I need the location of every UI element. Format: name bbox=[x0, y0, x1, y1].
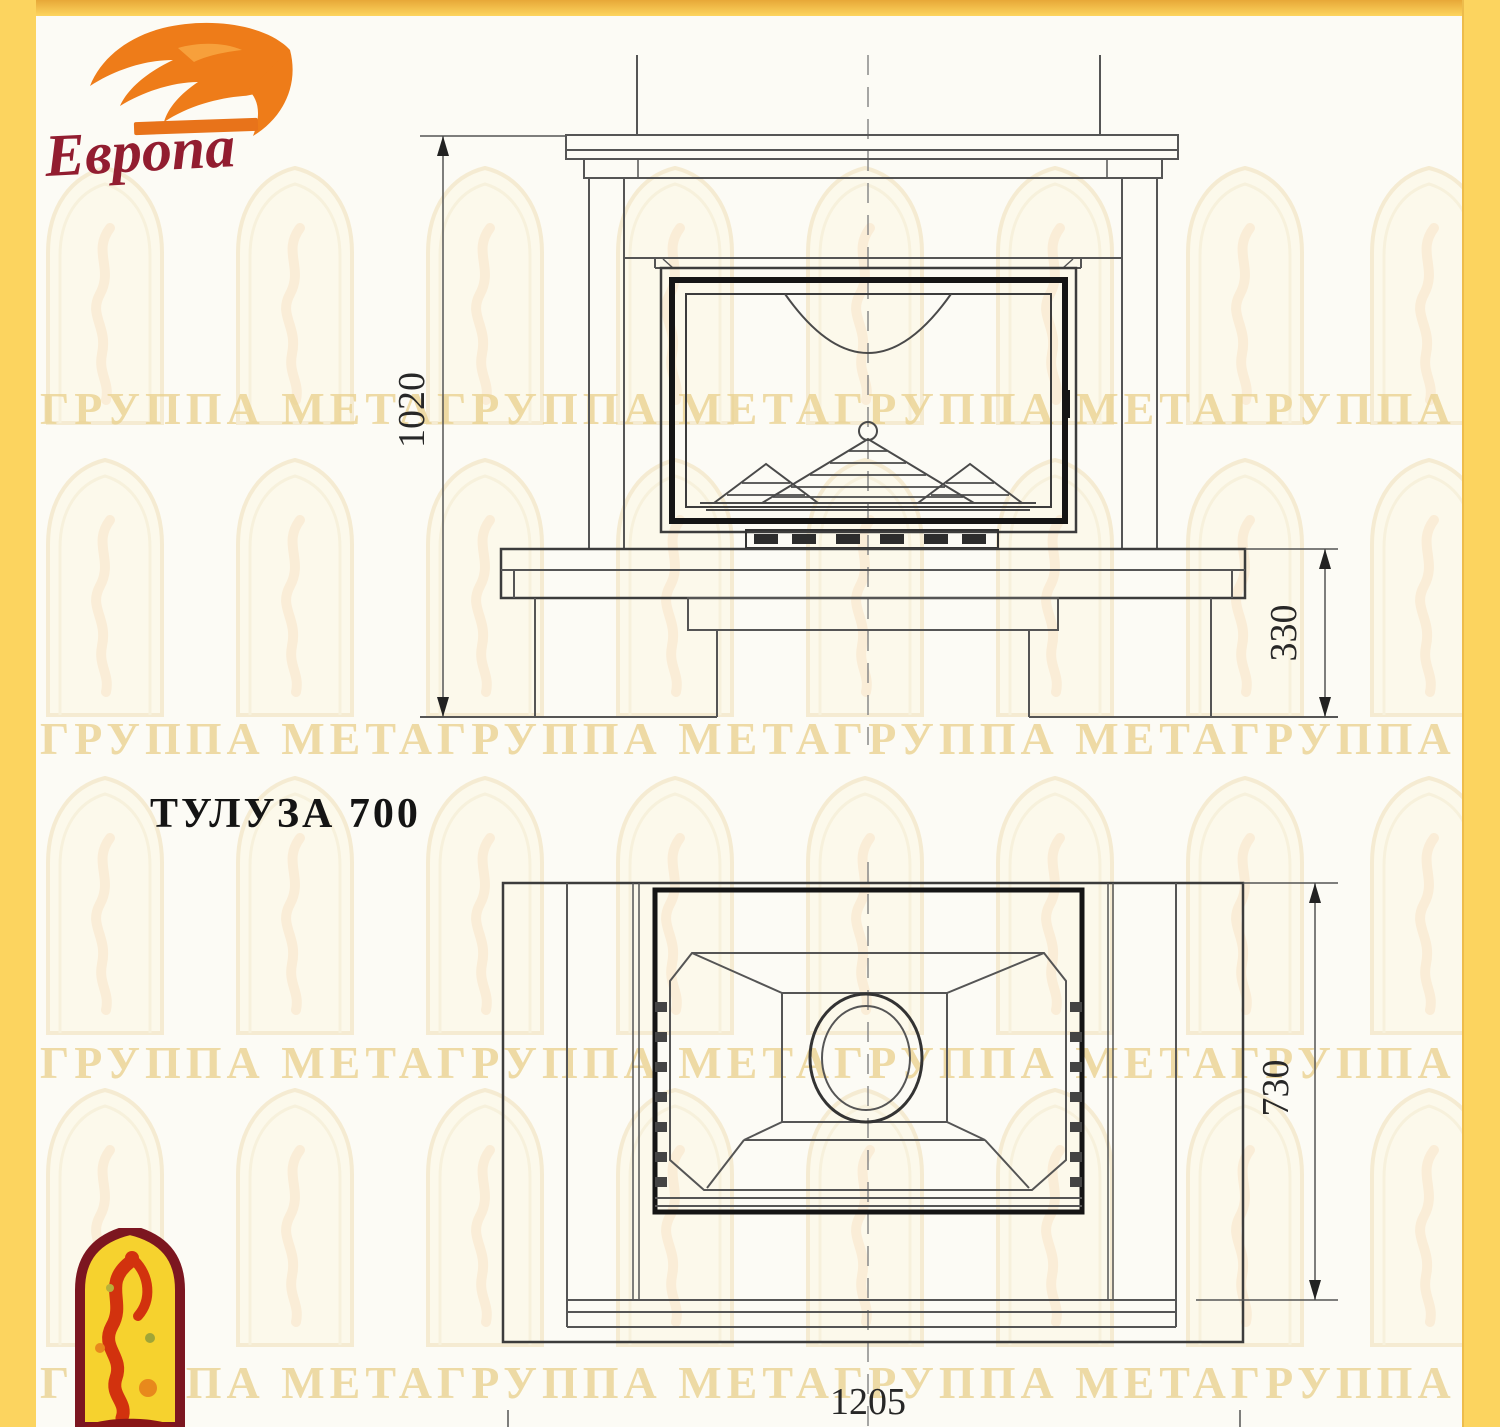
brand-logo: Европа bbox=[28, 8, 328, 203]
watermark-arch bbox=[808, 1090, 922, 1345]
watermark-arch bbox=[238, 460, 352, 715]
dim-depth-label: 730 bbox=[1255, 1060, 1297, 1117]
watermark-text-row: ГРУППА МЕТАГРУППА МЕТАГРУППА МЕТАГРУППА … bbox=[40, 1357, 1500, 1408]
page-border-left bbox=[0, 0, 36, 1427]
watermark-arch bbox=[618, 1090, 732, 1345]
technical-drawing-canvas: ГРУППА МЕТАГРУППА МЕТАГРУППА МЕТАГРУППА … bbox=[0, 0, 1500, 1427]
watermark-arch bbox=[808, 460, 922, 715]
watermark-arch bbox=[998, 1090, 1112, 1345]
dim-width-label: 1205 bbox=[830, 1381, 906, 1423]
dim-front-height-label: 1020 bbox=[391, 372, 433, 448]
firebird-emblem bbox=[68, 1228, 192, 1427]
watermark-arch bbox=[48, 460, 162, 715]
watermark-arch bbox=[1188, 1090, 1302, 1345]
watermark-arch bbox=[618, 778, 732, 1033]
watermark-arch bbox=[238, 1090, 352, 1345]
door-handle bbox=[1063, 390, 1070, 418]
page-title: ТУЛУЗА 700 bbox=[150, 790, 421, 838]
brand-text: Европа bbox=[42, 113, 236, 189]
watermark-text-row: ГРУППА МЕТАГРУППА МЕТАГРУППА МЕТАГРУППА … bbox=[40, 383, 1500, 434]
catalog-page: ГРУППА МЕТАГРУППА МЕТАГРУППА МЕТАГРУППА … bbox=[0, 0, 1500, 1427]
watermark-text-row: ГРУППА МЕТАГРУППА МЕТАГРУППА МЕТАГРУППА … bbox=[40, 713, 1500, 764]
watermark-arch bbox=[998, 778, 1112, 1033]
watermark-arch bbox=[428, 460, 542, 715]
watermark-arch bbox=[428, 1090, 542, 1345]
watermark-arch bbox=[48, 778, 162, 1033]
page-border-right bbox=[1462, 0, 1500, 1427]
watermark-arch bbox=[428, 778, 542, 1033]
page-border-top bbox=[0, 0, 1500, 16]
watermark-arch bbox=[1188, 778, 1302, 1033]
dim-base-height-label: 330 bbox=[1263, 605, 1305, 662]
